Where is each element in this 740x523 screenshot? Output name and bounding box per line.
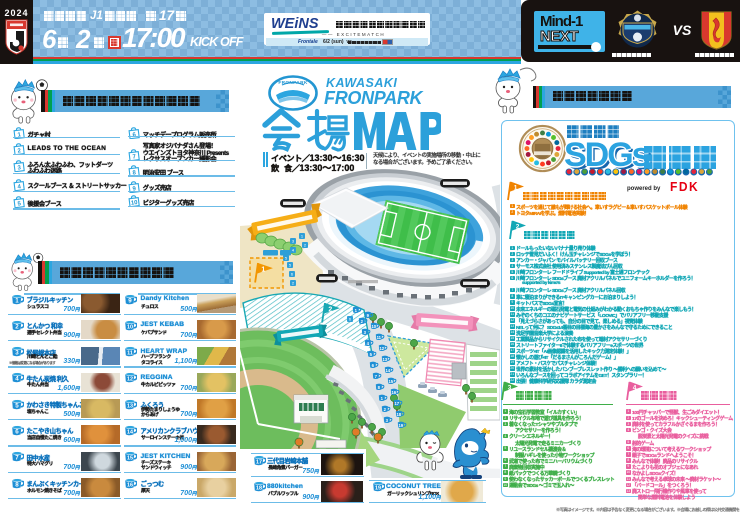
svg-text:2: 2 — [516, 224, 520, 231]
svg-text:18: 18 — [396, 412, 401, 417]
svg-text:11: 11 — [128, 351, 134, 357]
svg-text:14: 14 — [385, 368, 390, 373]
svg-text:5: 5 — [15, 402, 19, 409]
svg-text:1: 1 — [15, 297, 19, 304]
svg-text:9: 9 — [129, 297, 133, 304]
svg-text:2: 2 — [328, 307, 332, 314]
svg-text:4: 4 — [633, 385, 637, 392]
svg-text:4: 4 — [15, 376, 19, 383]
svg-text:15: 15 — [127, 456, 133, 462]
svg-text:10: 10 — [127, 324, 133, 330]
svg-text:16: 16 — [127, 482, 133, 488]
svg-text:13: 13 — [382, 357, 387, 362]
svg-text:3: 3 — [15, 350, 19, 357]
svg-text:FRONPARK: FRONPARK — [278, 80, 307, 86]
svg-text:19: 19 — [398, 423, 403, 428]
svg-text:17: 17 — [394, 401, 399, 406]
svg-text:7: 7 — [15, 455, 19, 462]
svg-text:2: 2 — [15, 323, 19, 330]
svg-text:1: 1 — [514, 185, 518, 192]
svg-text:13: 13 — [127, 403, 133, 409]
svg-text:12: 12 — [379, 346, 384, 351]
svg-text:8: 8 — [15, 481, 19, 488]
svg-text:16: 16 — [391, 390, 396, 395]
svg-text:15: 15 — [388, 379, 393, 384]
svg-text:10: 10 — [371, 324, 376, 329]
svg-text:1: 1 — [261, 267, 265, 274]
svg-text:12: 12 — [127, 377, 133, 383]
svg-text:11: 11 — [377, 335, 382, 340]
svg-text:3: 3 — [508, 385, 512, 392]
svg-text:6: 6 — [15, 429, 19, 436]
svg-text:14: 14 — [127, 430, 133, 436]
